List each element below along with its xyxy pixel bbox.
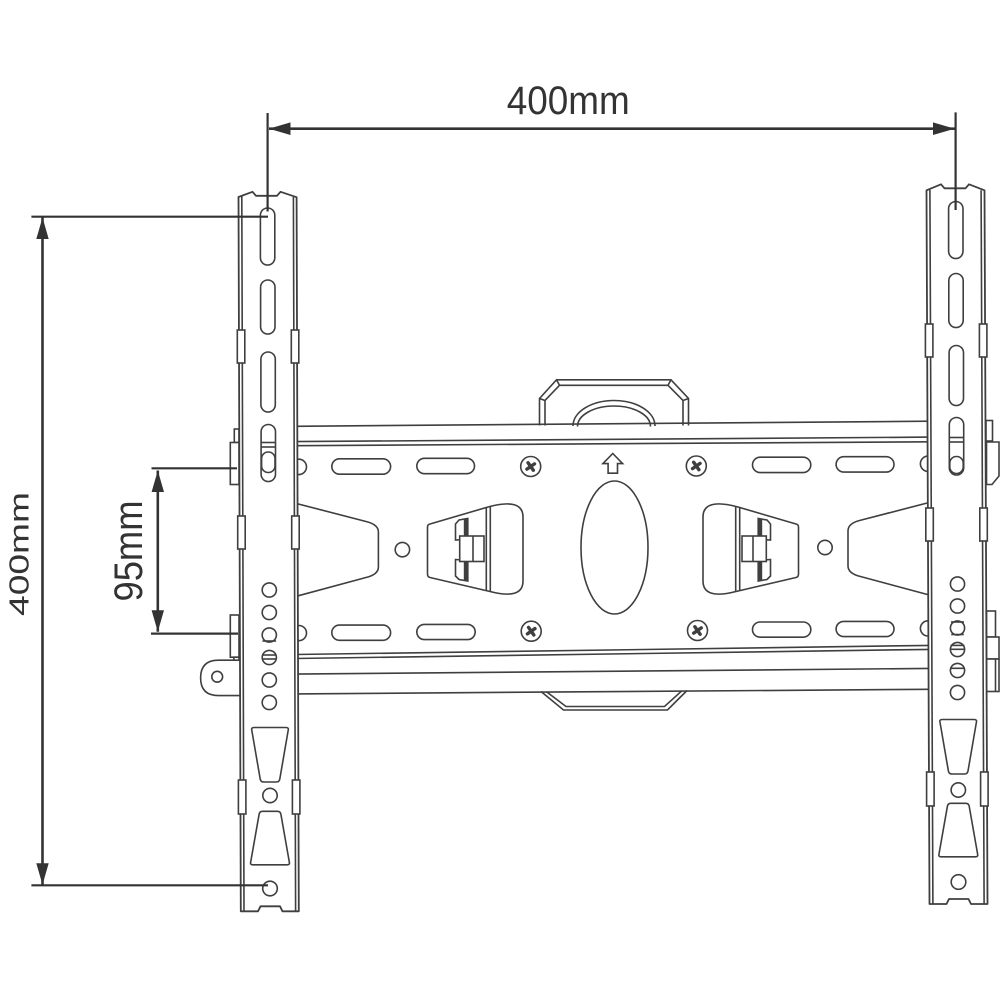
svg-text:400mm: 400mm xyxy=(507,79,630,123)
svg-text:95mm: 95mm xyxy=(107,501,151,602)
svg-text:400mm: 400mm xyxy=(4,492,35,616)
